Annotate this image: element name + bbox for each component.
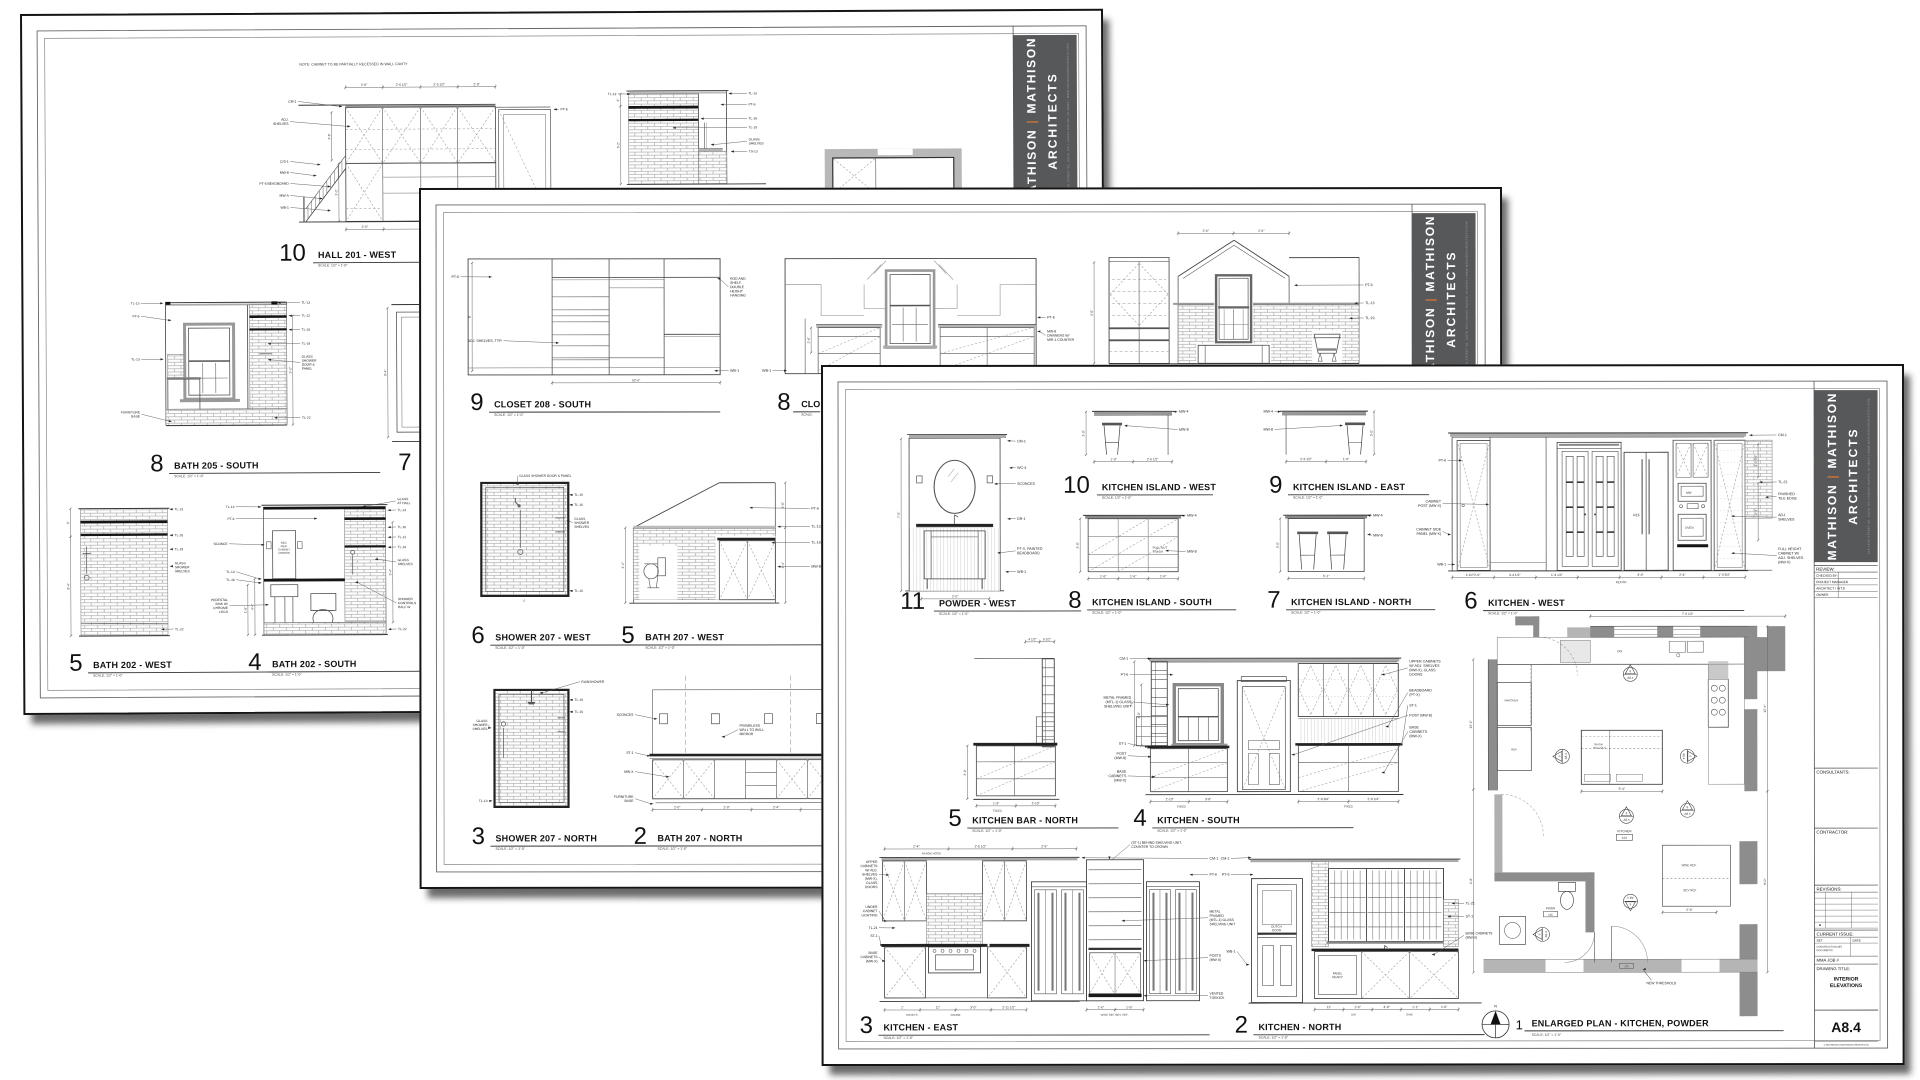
svg-text:WB-1: WB-1	[1017, 570, 1026, 574]
svg-text:PT-6: PT-6	[1438, 458, 1446, 462]
svg-text:1'-6": 1'-6"	[1160, 574, 1166, 578]
svg-text:1'-9": 1'-9"	[993, 801, 999, 805]
svg-text:3'-0": 3'-0"	[334, 189, 338, 195]
svg-text:2'-0": 2'-0"	[473, 82, 479, 86]
svg-text:MW-4: MW-4	[1187, 514, 1197, 518]
svg-text:7: 7	[398, 449, 411, 476]
svg-text:DR-1: DR-1	[1017, 517, 1025, 521]
svg-text:PWDR: PWDR	[1546, 906, 1556, 910]
svg-text:PANEL: PANEL	[302, 367, 313, 371]
svg-text:POWDER - WEST: POWDER - WEST	[939, 598, 1016, 608]
svg-text:(MW-X): (MW-X)	[1778, 560, 1790, 564]
svg-text:A8.4: A8.4	[1544, 931, 1548, 938]
svg-text:7'-0": 7'-0"	[1130, 701, 1134, 707]
svg-text:BASE: BASE	[624, 799, 634, 803]
svg-text:GLASS SHOWER DOOR & PANEL: GLASS SHOWER DOOR & PANEL	[519, 474, 571, 478]
svg-text:11: 11	[900, 588, 925, 615]
svg-text:SCALE: 1/2" = 1'-0": SCALE: 1/2" = 1'-0"	[645, 646, 675, 650]
svg-text:9": 9"	[66, 521, 70, 524]
svg-text:SCALE: 1/2" = 1'-0": SCALE: 1/2" = 1'-0"	[883, 1036, 913, 1040]
svg-text:NEW THRESHOLD: NEW THRESHOLD	[1647, 981, 1677, 985]
svg-text:8: 8	[1068, 587, 1081, 614]
svg-text:1'-3 3/4": 1'-3 3/4"	[1718, 573, 1730, 577]
svg-text:PT-6: PT-6	[1121, 673, 1129, 677]
svg-text:MW-A: MW-A	[280, 194, 290, 198]
svg-text:5'-2": 5'-2"	[616, 142, 620, 148]
svg-text:2'-4": 2'-4"	[913, 845, 919, 849]
svg-text:FIXED: FIXED	[1177, 805, 1187, 809]
svg-text:CABINETS: CABINETS	[1108, 774, 1127, 778]
svg-text:TL-19: TL-19	[574, 493, 583, 497]
svg-text:2'-0": 2'-0"	[362, 225, 368, 229]
svg-text:DOORS: DOORS	[1409, 673, 1423, 677]
svg-text:TL-13: TL-13	[226, 570, 235, 574]
svg-text:2'-6": 2'-6"	[1686, 908, 1692, 912]
svg-text:REF.: REF.	[1511, 747, 1517, 751]
svg-text:TL-16: TL-16	[398, 525, 407, 529]
svg-text:(MW-8): (MW-8)	[1114, 756, 1126, 760]
svg-text:SCALE: 1/2" = 1'-0": SCALE: 1/2" = 1'-0"	[1293, 496, 1323, 500]
svg-text:1'-0": 1'-0"	[1441, 1005, 1447, 1009]
svg-text:CLO: CLO	[801, 399, 820, 409]
svg-text:SCALE:: SCALE:	[801, 413, 812, 417]
svg-text:SINK: SINK	[1406, 1012, 1413, 1016]
svg-text:PT-6: PT-6	[451, 275, 459, 279]
svg-text:105: 105	[1548, 913, 1553, 917]
svg-text:12'-4": 12'-4"	[1763, 705, 1767, 713]
svg-text:PT-6 BEADBOARD: PT-6 BEADBOARD	[259, 182, 289, 186]
svg-text:ELEVATIONS: ELEVATIONS	[1830, 983, 1863, 989]
svg-text:4 1/2": 4 1/2"	[1028, 637, 1036, 641]
svg-text:DW: DW	[1351, 1013, 1356, 1017]
svg-text:DRAWING TITLE:: DRAWING TITLE:	[1817, 966, 1851, 971]
svg-text:9: 9	[470, 389, 483, 416]
svg-text:9: 9	[1269, 472, 1282, 499]
svg-text:SHELVING UNIT: SHELVING UNIT	[1209, 922, 1235, 926]
svg-text:PT-6: PT-6	[560, 107, 567, 111]
svg-text:4 1/2"2'-0": 4 1/2"2'-0"	[1466, 573, 1481, 577]
svg-text:3'-0": 3'-0"	[970, 1005, 976, 1009]
svg-text:TL-10: TL-10	[574, 589, 583, 593]
svg-text:MW-X: MW-X	[624, 770, 634, 774]
svg-text:3'-0": 3'-0"	[1370, 430, 1374, 436]
svg-text:TL-13: TL-13	[608, 92, 617, 96]
svg-text:DOCUMENTS: DOCUMENTS	[1817, 949, 1833, 952]
svg-text:TS-13: TS-13	[749, 149, 758, 153]
svg-text:SCALE: 1/2" = 1'-0": SCALE: 1/2" = 1'-0"	[1291, 611, 1321, 615]
svg-text:KITCHEN ISLAND - NORTH: KITCHEN ISLAND - NORTH	[1291, 597, 1411, 607]
svg-text:SHELVES: SHELVES	[574, 525, 590, 529]
svg-text:BEADBOARD: BEADBOARD	[1017, 551, 1040, 555]
svg-text:KITCHEN: KITCHEN	[1617, 829, 1632, 833]
svg-text:PT-6: PT-6	[227, 517, 234, 521]
svg-text:3'-0": 3'-0"	[1276, 542, 1280, 548]
svg-text:RANGE: RANGE	[951, 1013, 961, 1017]
svg-text:SHELVES: SHELVES	[473, 727, 489, 731]
svg-text:8'-4": 8'-4"	[66, 583, 70, 589]
svg-text:2'-6 1/2": 2'-6 1/2"	[1300, 457, 1312, 461]
svg-text:9": 9"	[616, 99, 620, 102]
svg-text:A8.4: A8.4	[1623, 818, 1630, 822]
svg-text:WB-1: WB-1	[280, 206, 289, 210]
svg-text:PT-6: PT-6	[811, 507, 819, 511]
svg-text:2'-10": 2'-10"	[1032, 801, 1040, 805]
svg-text:MATHISON | MATHISON: MATHISON | MATHISON	[1024, 37, 1039, 206]
svg-text:KITCHEN - NORTH: KITCHEN - NORTH	[1258, 1022, 1341, 1032]
svg-text:A8.4: A8.4	[1627, 896, 1634, 900]
svg-text:ARCHITECTS: ARCHITECTS	[1846, 427, 1860, 524]
svg-text:PULLOUT: PULLOUT	[1593, 746, 1606, 750]
svg-text:PT-6: PT-6	[1047, 315, 1055, 319]
svg-text:TL-13: TL-13	[397, 508, 406, 512]
svg-text:TL-21: TL-21	[1465, 901, 1474, 905]
svg-text:KITCHEN ISLAND - EAST: KITCHEN ISLAND - EAST	[1293, 482, 1406, 492]
svg-text:SCALE: 1/2" = 1'-0": SCALE: 1/2" = 1'-0"	[318, 263, 348, 267]
svg-text:5'-4": 5'-4"	[388, 569, 392, 575]
svg-text:DATE: DATE	[1853, 939, 1861, 943]
svg-text:SCALE: 1/2" = 1'-0": SCALE: 1/2" = 1'-0"	[939, 612, 969, 616]
svg-text:SHOWER 207 - NORTH: SHOWER 207 - NORTH	[495, 833, 597, 843]
svg-text:1'-3 3/4": 1'-3 3/4"	[1754, 455, 1758, 467]
svg-text:SCALE: 1/2" = 1'-0": SCALE: 1/2" = 1'-0"	[495, 646, 525, 650]
svg-text:11": 11"	[1327, 1005, 1331, 1009]
svg-text:TL-16: TL-16	[574, 503, 583, 507]
svg-text:MW-4: MW-4	[1179, 410, 1189, 414]
svg-text:ARCHITECTS: ARCHITECTS	[1045, 72, 1059, 169]
svg-text:MATHISON | MATHISON: MATHISON | MATHISON	[1825, 392, 1839, 561]
svg-text:A8.4: A8.4	[1627, 676, 1634, 680]
svg-text:2'-11 1/2": 2'-11 1/2"	[1002, 1005, 1015, 1009]
svg-text:4'-6": 4'-6"	[327, 133, 331, 139]
svg-text:TL-19: TL-19	[175, 547, 184, 551]
svg-text:2'-8 1/4": 2'-8 1/4"	[1368, 797, 1380, 801]
svg-text:TL-12: TL-12	[398, 535, 407, 539]
svg-text:KITCHEN ISLAND - SOUTH: KITCHEN ISLAND - SOUTH	[1092, 597, 1212, 607]
svg-text:2'-6": 2'-6"	[1258, 229, 1264, 233]
svg-text:REVIEW:: REVIEW:	[1816, 567, 1834, 572]
svg-text:2'-4": 2'-4"	[773, 805, 779, 809]
svg-text:SCONCES: SCONCES	[617, 713, 635, 717]
svg-text:TL-16: TL-16	[574, 710, 583, 714]
svg-text:ENLARGED PLAN - KITCHEN, POWDE: ENLARGED PLAN - KITCHEN, POWDER	[1532, 1018, 1710, 1028]
svg-text:REVISIONS:: REVISIONS:	[1816, 887, 1841, 892]
svg-text:WB-1: WB-1	[1437, 562, 1446, 566]
svg-text:2'-6": 2'-6"	[807, 337, 811, 343]
svg-text:(MW-X): (MW-X)	[1465, 936, 1477, 940]
svg-text:7'-5 1/2": 7'-5 1/2"	[1682, 612, 1694, 616]
svg-text:9 1/2": 9 1/2"	[1043, 637, 1051, 641]
svg-text:NOTE: CABINET TO BE PARTIALLY: NOTE: CABINET TO BE PARTIALLY RECESSED I…	[299, 62, 408, 67]
svg-text:SHELVES: SHELVES	[398, 562, 414, 566]
svg-text:N: N	[1494, 1004, 1497, 1008]
svg-text:© MATHISON | MATHISON ARCHITEC: © MATHISON | MATHISON ARCHITECTS	[1824, 1044, 1869, 1047]
svg-text:52'-6": 52'-6"	[632, 378, 640, 382]
svg-text:PT-6: PT-6	[1222, 873, 1230, 877]
svg-text:TL-16: TL-16	[302, 328, 311, 332]
svg-text:TL-19: TL-19	[749, 125, 758, 129]
svg-text:MMA JOB #: MMA JOB #	[1817, 958, 1840, 963]
svg-text:KITCHEN - SOUTH: KITCHEN - SOUTH	[1157, 815, 1240, 825]
svg-text:SCONCES: SCONCES	[1017, 482, 1035, 486]
svg-text:COUNTER TO CROWN: COUNTER TO CROWN	[1131, 845, 1168, 849]
svg-text:1: 1	[1516, 1017, 1523, 1032]
svg-text:TL-19: TL-19	[1365, 316, 1374, 320]
svg-text:TL-13: TL-13	[131, 357, 140, 361]
svg-text:C: C	[523, 599, 526, 603]
svg-text:1'-1": 1'-1"	[1412, 1005, 1418, 1009]
svg-text:A8.4: A8.4	[1682, 753, 1686, 760]
svg-text:TL-10: TL-10	[479, 799, 488, 803]
svg-text:CM-1: CM-1	[288, 100, 296, 104]
svg-text:(MW-X), GLASS: (MW-X), GLASS	[1409, 668, 1436, 672]
svg-text:8'-0": 8'-0"	[1763, 878, 1767, 884]
svg-text:SCONCE: SCONCE	[213, 542, 228, 546]
svg-text:8'-4": 8'-4"	[383, 370, 387, 376]
svg-text:1'-0": 1'-0"	[1343, 457, 1349, 461]
svg-text:5: 5	[621, 622, 634, 649]
svg-text:(MW-X): (MW-X)	[866, 959, 878, 963]
svg-text:MW-8: MW-8	[1373, 534, 1383, 538]
svg-text:TRIVETS: TRIVETS	[906, 1013, 918, 1017]
svg-text:4: 4	[248, 649, 261, 676]
svg-text:TL-21: TL-21	[1778, 480, 1787, 484]
svg-text:MW/OVEN: MW/OVEN	[1504, 698, 1518, 702]
svg-text:SCALE: 1/2" = 1'-0": SCALE: 1/2" = 1'-0"	[1532, 1033, 1562, 1037]
svg-text:PT-6: PT-6	[1365, 283, 1373, 287]
svg-text:3'-0": 3'-0"	[1637, 573, 1643, 577]
svg-text:2'-6": 2'-6"	[1203, 229, 1209, 233]
svg-text:FIXED: FIXED	[1344, 805, 1354, 809]
svg-text:TL-19: TL-19	[811, 541, 820, 545]
svg-text:MATHISON | MATHISON: MATHISON | MATHISON	[1423, 215, 1437, 384]
svg-text:10: 10	[279, 240, 306, 267]
svg-text:4'-4": 4'-4"	[250, 604, 254, 610]
svg-text:5'-1": 5'-1"	[1323, 574, 1329, 578]
svg-text:MW-4: MW-4	[1264, 410, 1274, 414]
svg-text:SCALE: 1/2" = 1'-0": SCALE: 1/2" = 1'-0"	[494, 413, 524, 417]
svg-text:4'-6": 4'-6"	[1090, 310, 1094, 316]
svg-text:SCALE: 1/2" = 1'-0": SCALE: 1/2" = 1'-0"	[1258, 1036, 1288, 1040]
svg-text:BATH 205 - SOUTH: BATH 205 - SOUTH	[174, 460, 259, 470]
svg-text:KITCHEN - WEST: KITCHEN - WEST	[1488, 598, 1565, 608]
svg-text:ST-1: ST-1	[1119, 742, 1127, 746]
svg-text:616 LYON STREET NE, SUITE 100: 616 LYON STREET NE, SUITE 100 | GRAND RA…	[1465, 221, 1469, 376]
svg-text:2'-4": 2'-4"	[1754, 509, 1758, 515]
svg-text:SCALE: 1/2" = 1'-0": SCALE: 1/2" = 1'-0"	[174, 474, 204, 478]
svg-text:5'-4": 5'-4"	[1619, 787, 1625, 791]
svg-text:RANGE HOOD: RANGE HOOD	[922, 851, 941, 855]
svg-text:2'-6": 2'-6"	[1041, 844, 1047, 848]
svg-text:ADJ.: ADJ.	[1778, 513, 1786, 517]
svg-text:DW: DW	[1617, 649, 1622, 653]
svg-text:A8.4: A8.4	[1684, 812, 1691, 816]
svg-text:8: 8	[777, 389, 790, 416]
svg-text:TRASH: TRASH	[1153, 550, 1163, 554]
svg-text:MW: MW	[1686, 491, 1692, 495]
svg-text:MW-8: MW-8	[1264, 428, 1274, 432]
svg-text:6: 6	[1464, 587, 1477, 614]
svg-text:KITCHEN BAR - NORTH: KITCHEN BAR - NORTH	[972, 815, 1078, 825]
svg-text:11": 11"	[936, 1005, 940, 1009]
svg-text:ARCHITECT / INT.D: ARCHITECT / INT.D	[1816, 587, 1846, 591]
svg-text:2'-8 3/4": 2'-8 3/4"	[1318, 797, 1330, 801]
svg-text:2'-0": 2'-0"	[723, 805, 729, 809]
svg-text:TOEKICK: TOEKICK	[1210, 996, 1226, 1000]
svg-text:ARCHITECTS: ARCHITECTS	[1444, 250, 1458, 347]
svg-text:REF/FR: REF/FR	[1616, 580, 1628, 584]
svg-text:5: 5	[948, 805, 961, 832]
svg-text:(MW-X): (MW-X)	[1210, 958, 1222, 962]
svg-text:TL-13: TL-13	[301, 301, 310, 305]
svg-text:8': 8'	[468, 315, 472, 318]
svg-text:PROJECT MANAGER: PROJECT MANAGER	[1816, 580, 1849, 584]
svg-text:1'-6": 1'-6"	[1100, 574, 1106, 578]
svg-text:CONTRACTOR:: CONTRACTOR:	[1816, 830, 1848, 835]
svg-text:616 LYON STREET NE, SUITE 100: 616 LYON STREET NE, SUITE 100 | GRAND RA…	[1066, 43, 1071, 198]
svg-text:13'-2": 13'-2"	[1469, 720, 1473, 728]
svg-text:SHELVING UNIT: SHELVING UNIT	[1104, 705, 1132, 709]
svg-text:ST-1: ST-1	[1409, 703, 1417, 707]
svg-text:5'-2": 5'-2"	[288, 367, 292, 373]
svg-text:SHOWER 207 - WEST: SHOWER 207 - WEST	[495, 632, 591, 642]
svg-text:8: 8	[150, 450, 163, 477]
svg-text:3'-8": 3'-8"	[1205, 797, 1211, 801]
svg-text:SCALE: 1/2" = 1'-0": SCALE: 1/2" = 1'-0"	[93, 674, 123, 678]
svg-text:2'-6 1/2": 2'-6 1/2"	[975, 844, 987, 848]
svg-text:2'-6 1/2": 2'-6 1/2"	[433, 83, 445, 87]
svg-text:SCALE: 1/2" = 1'-0": SCALE: 1/2" = 1'-0"	[1102, 496, 1132, 500]
svg-text:C/S-1: C/S-1	[280, 160, 289, 164]
svg-text:SET: SET	[1817, 939, 1823, 943]
svg-text:DOOR: DOOR	[1272, 928, 1282, 932]
svg-text:9'-8": 9'-8"	[1469, 878, 1473, 884]
svg-text:CM-1: CM-1	[1221, 857, 1230, 861]
svg-text:LEGS: LEGS	[219, 610, 229, 614]
svg-text:3: 3	[472, 823, 485, 850]
svg-text:MIR-1 COUNTER: MIR-1 COUNTER	[1047, 338, 1074, 342]
svg-text:ADJ. SHELVES: ADJ. SHELVES	[1778, 556, 1804, 560]
svg-text:CURRENT ISSUE:: CURRENT ISSUE:	[1816, 932, 1853, 937]
svg-text:SCALE: 1/2" = 1'-0": SCALE: 1/2" = 1'-0"	[1488, 611, 1518, 615]
svg-text:WB-1: WB-1	[762, 369, 771, 373]
svg-text:BEADBOARD: BEADBOARD	[1409, 688, 1432, 692]
svg-text:A8.4: A8.4	[1831, 1019, 1861, 1035]
svg-text:TILE EDGE: TILE EDGE	[1778, 497, 1797, 501]
svg-text:TL-22: TL-22	[398, 627, 407, 631]
svg-text:7: 7	[1267, 587, 1280, 614]
svg-text:1'-3 1/2": 1'-3 1/2"	[1551, 573, 1563, 577]
svg-text:SCALE: 1/2" = 1'-0": SCALE: 1/2" = 1'-0"	[272, 673, 302, 677]
svg-text:2'-6 1/2": 2'-6 1/2"	[1147, 457, 1159, 461]
svg-text:READY: READY	[1332, 975, 1342, 979]
svg-text:1': 1'	[901, 1006, 904, 1010]
svg-text:SCALE: 1/2" = 1'-0": SCALE: 1/2" = 1'-0"	[1092, 611, 1122, 615]
svg-text:SCALE: 1/2" = 1'-0": SCALE: 1/2" = 1'-0"	[495, 847, 525, 851]
svg-text:2: 2	[634, 823, 647, 850]
svg-text:5: 5	[69, 650, 82, 677]
svg-text:3: 3	[860, 1012, 873, 1039]
svg-text:OVEN: OVEN	[1685, 526, 1694, 530]
svg-text:PT-6: PT-6	[1209, 873, 1217, 877]
svg-text:BATH 207 - WEST: BATH 207 - WEST	[645, 632, 724, 642]
svg-text:PT-6: PT-6	[748, 102, 755, 106]
svg-text:2'-0": 2'-0"	[674, 805, 680, 809]
svg-text:4'-4": 4'-4"	[781, 562, 785, 568]
svg-text:104: 104	[1622, 836, 1627, 840]
svg-text:ST-1: ST-1	[1465, 914, 1473, 918]
svg-text:WINE REF.: WINE REF.	[1681, 863, 1696, 867]
svg-text:SCALE: 1/2" = 1'-0": SCALE: 1/2" = 1'-0"	[1157, 829, 1187, 833]
svg-text:1'-6": 1'-6"	[1126, 1005, 1132, 1009]
svg-text:CM-1: CM-1	[1778, 433, 1787, 437]
svg-text:1'-6": 1'-6"	[1098, 1005, 1104, 1009]
svg-text:BASE: BASE	[131, 414, 141, 418]
svg-text:2: 2	[1235, 1012, 1248, 1039]
svg-text:4'-0": 4'-0"	[1137, 712, 1141, 718]
svg-text:HALL 201 - WEST: HALL 201 - WEST	[318, 250, 397, 260]
svg-text:6-4 1/2": 6-4 1/2"	[1509, 573, 1520, 577]
svg-text:PT-6: PT-6	[133, 314, 140, 318]
svg-text:BEV REF: BEV REF	[1683, 888, 1696, 892]
svg-text:2'-4": 2'-4"	[1679, 573, 1685, 577]
svg-text:CM-1: CM-1	[1017, 439, 1026, 443]
svg-text:TL-13: TL-13	[226, 505, 235, 509]
svg-text:REF.: REF.	[1633, 513, 1640, 517]
svg-text:OWNER: OWNER	[1816, 593, 1829, 597]
svg-text:WB-1: WB-1	[1227, 950, 1236, 954]
svg-text:7'-0": 7'-0"	[897, 512, 901, 518]
svg-text:BATH 202 - SOUTH: BATH 202 - SOUTH	[272, 659, 357, 669]
svg-text:HANGING: HANGING	[730, 294, 746, 298]
svg-text:(MW-X): (MW-X)	[1409, 734, 1421, 738]
svg-text:MW-8: MW-8	[280, 171, 289, 175]
svg-text:TL-13: TL-13	[1365, 301, 1374, 305]
svg-text:POST (MW-X): POST (MW-X)	[1418, 504, 1441, 508]
svg-text:MW-8: MW-8	[811, 565, 821, 569]
svg-text:ST-1: ST-1	[626, 751, 633, 755]
svg-text:WC-4: WC-4	[1017, 466, 1026, 470]
svg-text:2'-6 1/2": 2'-6 1/2"	[396, 83, 408, 87]
svg-text:TL-16: TL-16	[226, 578, 235, 582]
svg-text:INTERIOR: INTERIOR	[1834, 977, 1859, 983]
svg-text:CONSULTANTS:: CONSULTANTS:	[1816, 770, 1849, 775]
svg-text:TL-22: TL-22	[302, 416, 311, 420]
svg-text:TL-13: TL-13	[131, 301, 140, 305]
svg-text:(MW-X): (MW-X)	[1114, 779, 1126, 783]
svg-text:2'-6": 2'-6"	[1355, 1005, 1361, 1009]
svg-text:2'-10": 2'-10"	[1166, 797, 1174, 801]
svg-text:1'-6": 1'-6"	[1130, 574, 1136, 578]
svg-text:A8.4: A8.4	[1564, 753, 1568, 760]
svg-text:TL-21: TL-21	[869, 926, 878, 930]
svg-text:TL-19: TL-19	[302, 342, 311, 346]
svg-text:CM-1: CM-1	[1119, 657, 1128, 661]
svg-text:3'-0": 3'-0"	[963, 769, 967, 775]
svg-text:SHELVES: SHELVES	[1778, 518, 1795, 522]
svg-text:BATH 202 - WEST: BATH 202 - WEST	[93, 660, 172, 670]
svg-text:3'-0": 3'-0"	[1076, 542, 1080, 548]
svg-text:TL-16: TL-16	[749, 116, 758, 120]
svg-text:SCALE: 1/2" = 1'-0": SCALE: 1/2" = 1'-0"	[972, 829, 1002, 833]
svg-text:RAINSHOWER: RAINSHOWER	[581, 680, 604, 684]
svg-text:MW-8: MW-8	[1187, 550, 1197, 554]
svg-text:PANEL (MW-X): PANEL (MW-X)	[1416, 532, 1441, 536]
svg-text:3'-0": 3'-0"	[1082, 430, 1086, 436]
svg-text:HALF W: HALF W	[398, 605, 411, 609]
svg-text:MIRROR: MIRROR	[278, 551, 289, 555]
svg-text:6: 6	[471, 622, 484, 649]
svg-text:TL-19: TL-19	[574, 698, 583, 702]
